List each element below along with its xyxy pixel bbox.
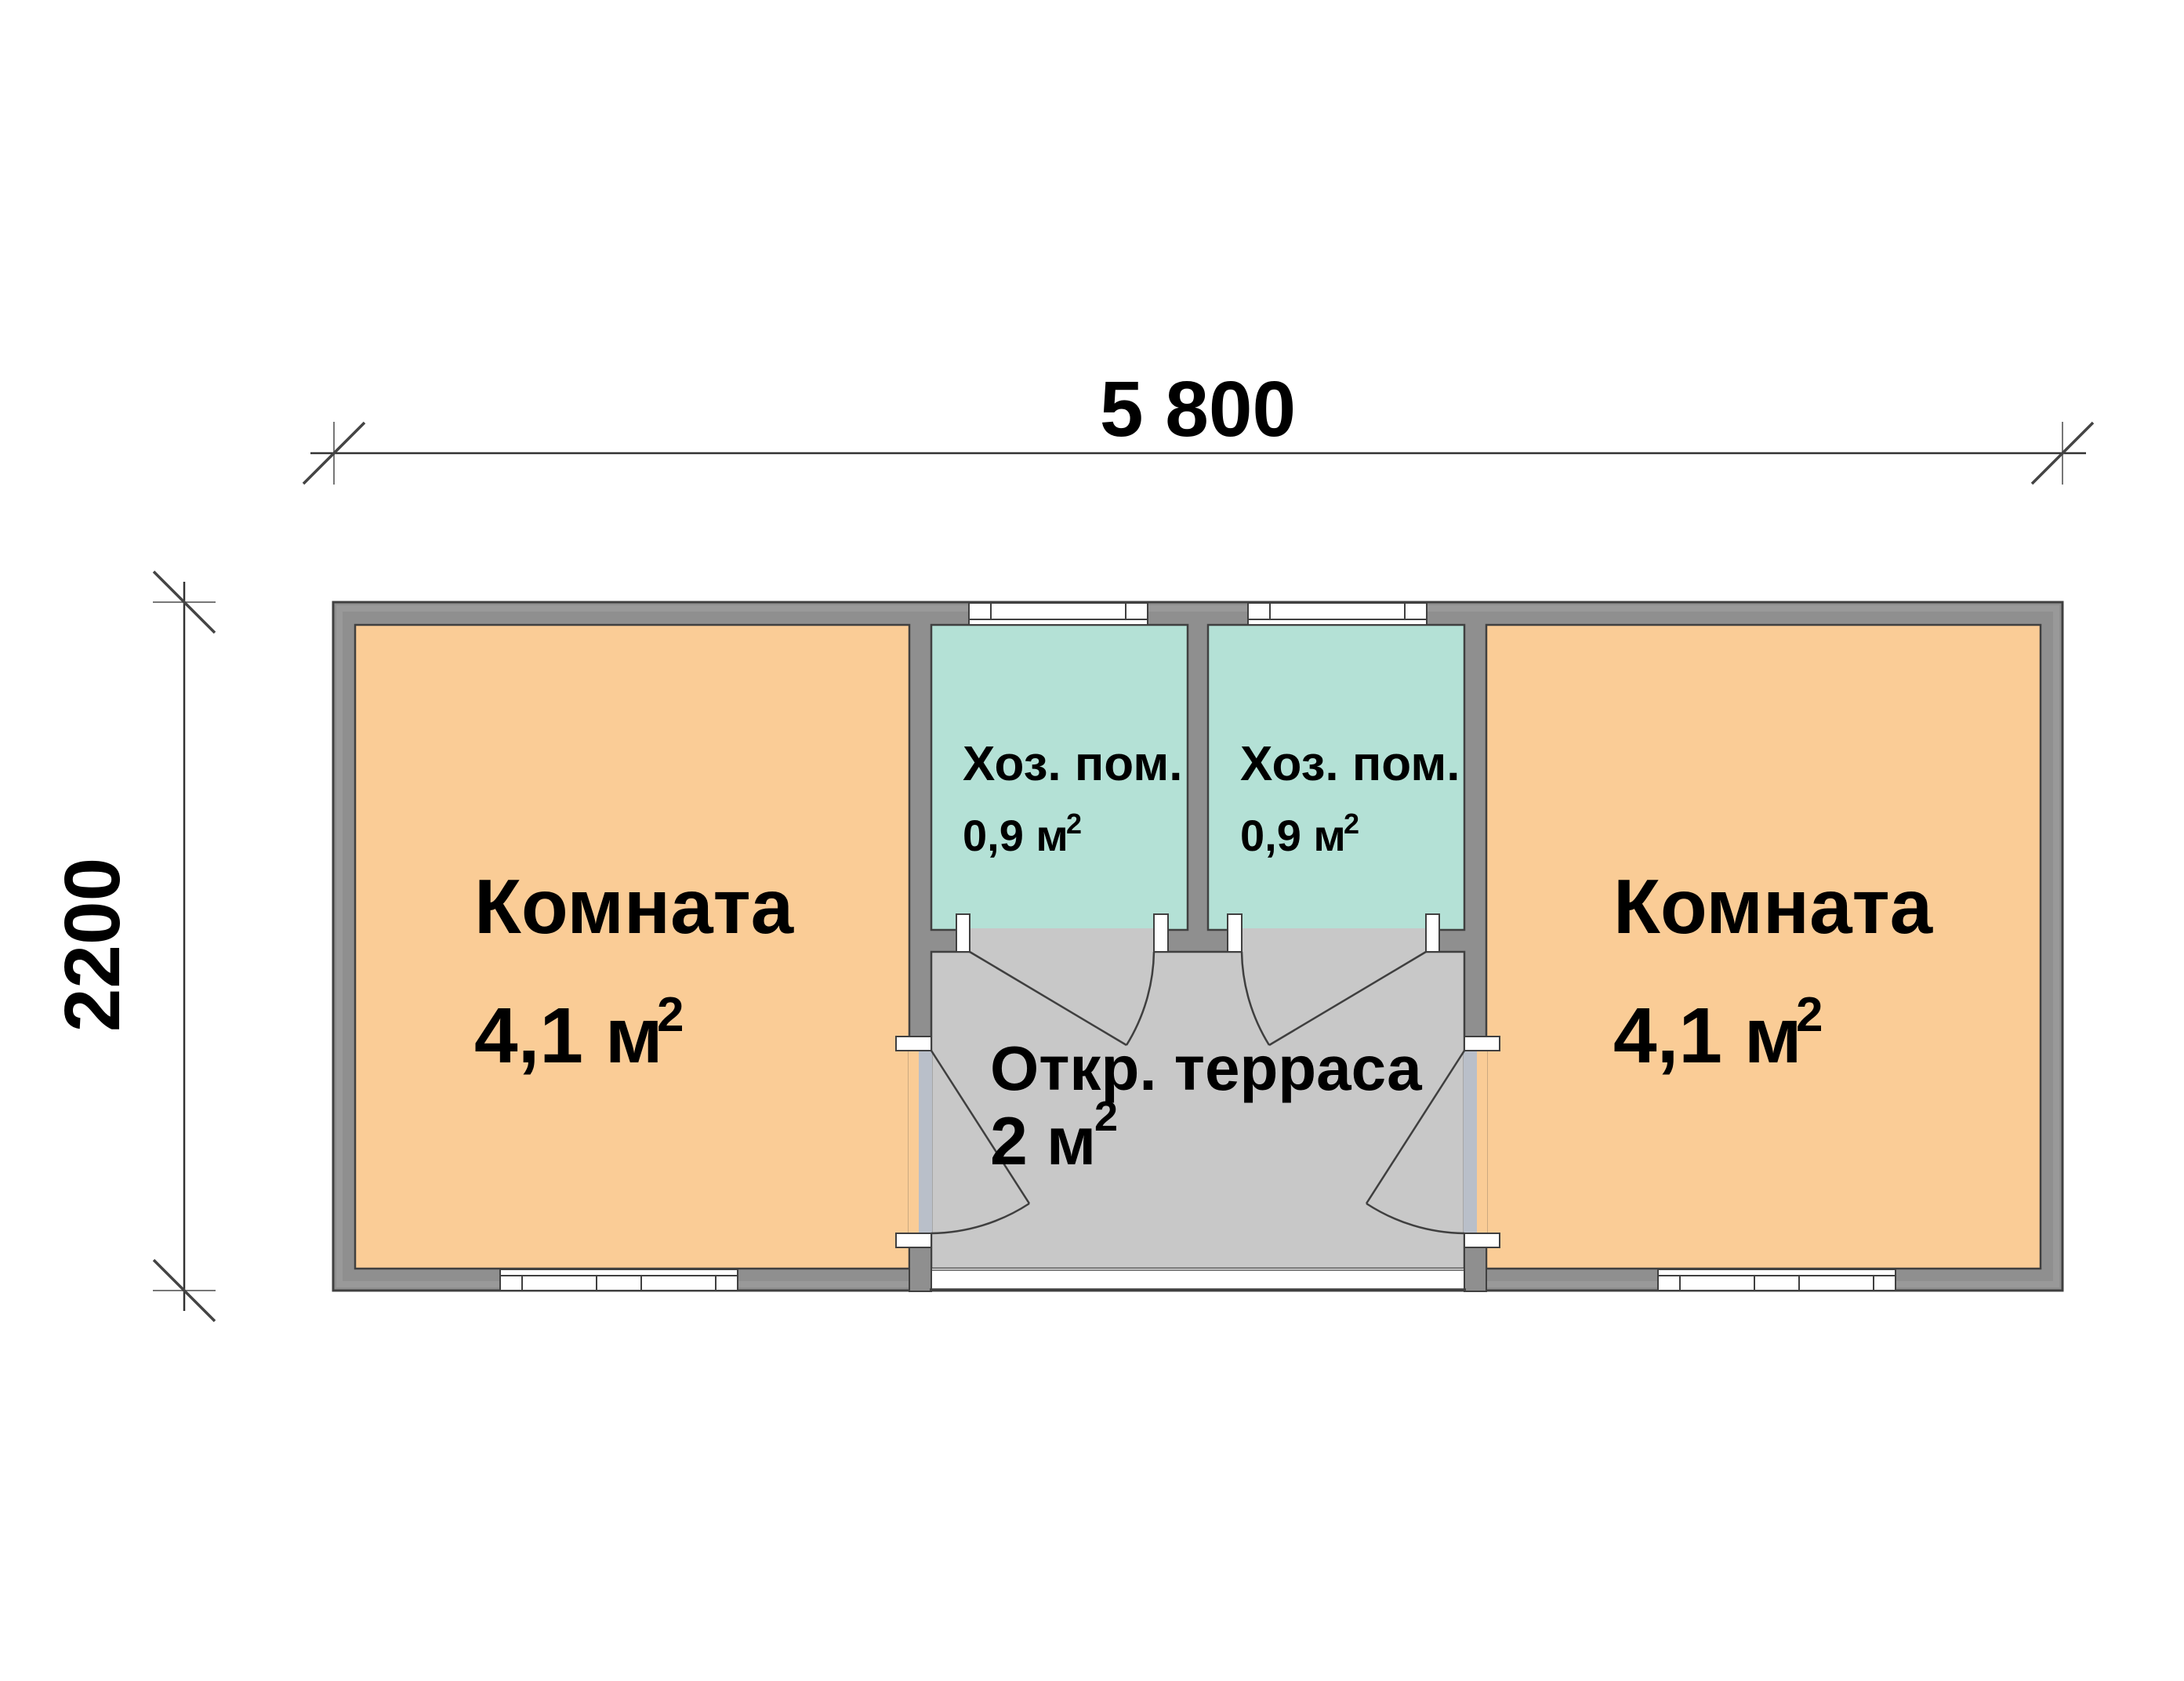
room-left-area: 4,1 м (474, 992, 663, 1080)
width-dimension-label: 5 800 (1100, 365, 1296, 453)
room-right-area: 4,1 м (1613, 992, 1802, 1080)
terrace-open-edge (932, 1269, 1464, 1289)
room-right-door-opening-floor (1477, 1051, 1487, 1233)
room-right-label: Комната (1613, 863, 1934, 949)
terrace-left-wall-stub (909, 1247, 931, 1291)
terrace-right-wall-stub (1464, 1247, 1486, 1291)
window-top-right (1248, 603, 1427, 625)
utility-right-door-jamb-left (1228, 914, 1242, 952)
utility-left-door-opening (970, 928, 1154, 953)
room-left-area-sup: 2 (657, 988, 684, 1042)
room-left-door-jamb-bottom (896, 1233, 931, 1247)
utility-right-label: Хоз. пом. (1240, 737, 1460, 791)
window-top-left (969, 603, 1148, 625)
floor-plan-canvas: 5 800 2200 (0, 0, 2184, 1681)
window-frame (500, 1269, 738, 1291)
room-right-door-jamb-top (1464, 1037, 1500, 1051)
utility-right-door-opening (1242, 928, 1426, 953)
utility-left-door-jamb-left (956, 914, 970, 952)
utility-left-area-sup: 2 (1066, 808, 1082, 840)
utility-right-door-jamb-right (1426, 914, 1439, 952)
window-frame (1248, 603, 1427, 625)
utility-right-area: 0,9 м (1240, 811, 1346, 860)
window-bottom-left (500, 1269, 738, 1291)
room-left-label: Комната (474, 863, 795, 949)
left-dimension: 2200 (49, 572, 216, 1321)
top-dimension: 5 800 (303, 365, 2093, 485)
utility-left-door-jamb-right (1154, 914, 1168, 952)
room-right-door-jamb-bottom (1464, 1233, 1500, 1247)
room-right-door-opening (1464, 1051, 1477, 1233)
window-frame (969, 603, 1148, 625)
room-right-area-sup: 2 (1796, 988, 1823, 1042)
terrace-area: 2 м (990, 1104, 1096, 1179)
utility-left-area: 0,9 м (963, 811, 1068, 860)
height-dimension-label: 2200 (49, 858, 136, 1032)
room-left-door-jamb-top (896, 1037, 931, 1051)
utility-left-label: Хоз. пом. (963, 737, 1182, 791)
floor-plan-page: 5 800 2200 (0, 0, 2184, 1681)
window-frame (1658, 1269, 1896, 1291)
terrace-area-sup: 2 (1094, 1093, 1118, 1140)
room-left-door-opening-floor (909, 1051, 919, 1233)
window-bottom-right (1658, 1269, 1896, 1291)
room-left-door-opening (919, 1051, 932, 1233)
terrace-label: Откр. терраса (990, 1033, 1422, 1103)
utility-right-area-sup: 2 (1344, 808, 1359, 840)
